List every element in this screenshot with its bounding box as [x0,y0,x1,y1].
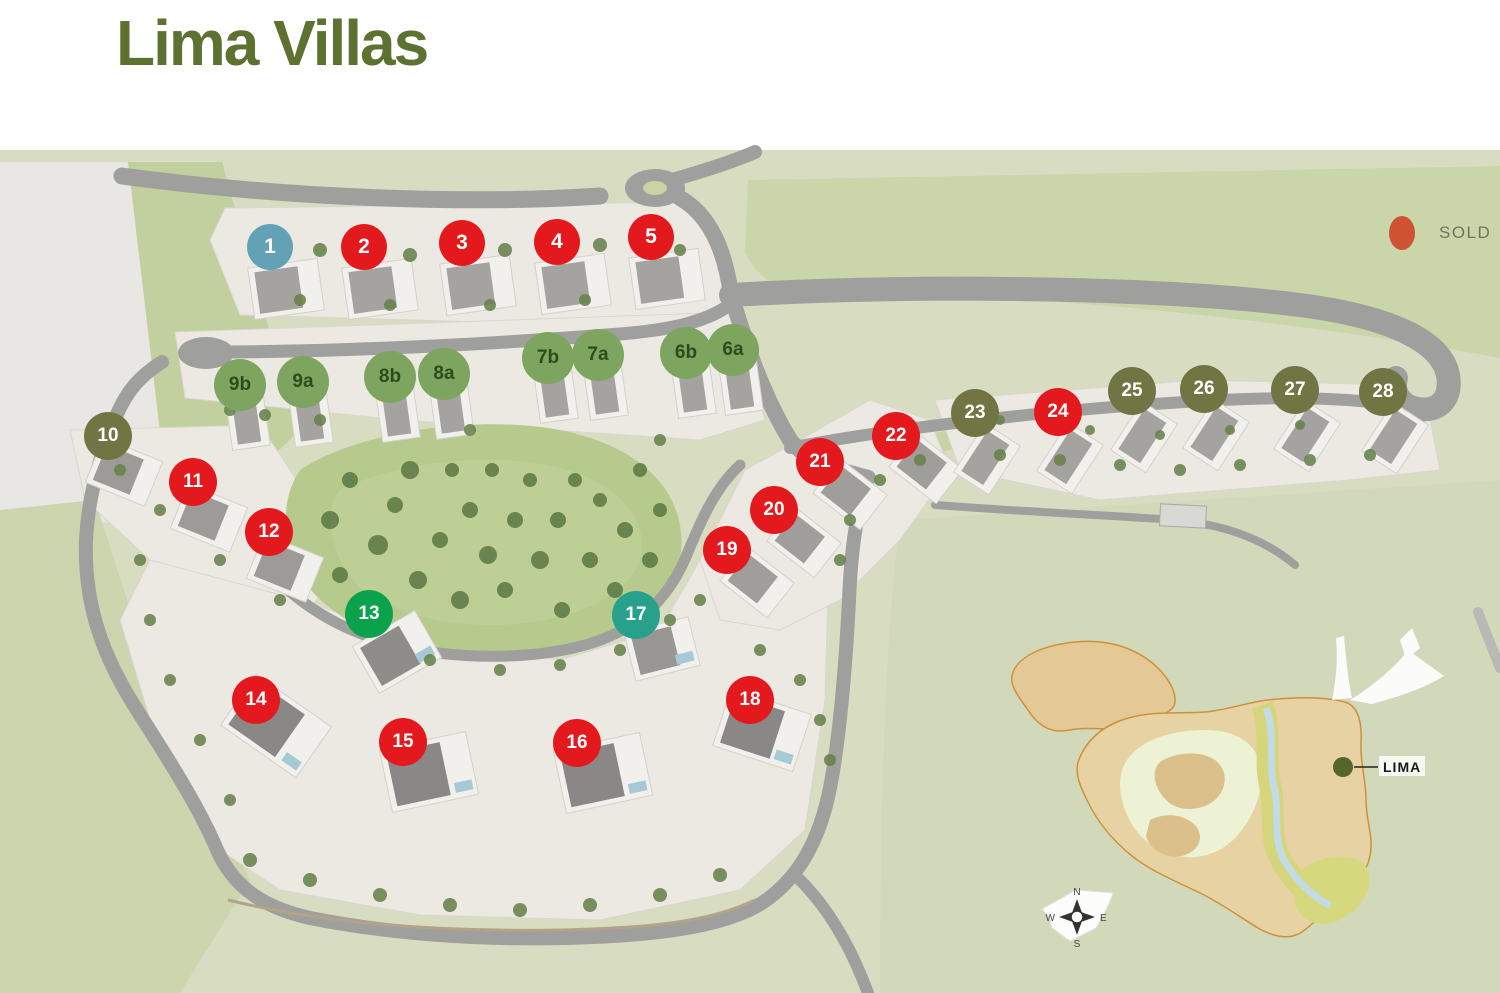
villa-marker-20[interactable]: 20 [750,486,798,534]
villa-marker-24[interactable]: 24 [1034,388,1082,436]
villa-marker-28[interactable]: 28 [1359,368,1407,416]
villa-marker-9b[interactable]: 9b [214,359,266,411]
page-title: Lima Villas [116,8,427,78]
villa-marker-26[interactable]: 26 [1180,365,1228,413]
villa-marker-14[interactable]: 14 [232,676,280,724]
villa-marker-27[interactable]: 27 [1271,366,1319,414]
villa-marker-17[interactable]: 17 [612,591,660,639]
sold-legend-label: SOLD [1439,223,1491,243]
villa-marker-10[interactable]: 10 [84,412,132,460]
villa-marker-21[interactable]: 21 [796,438,844,486]
villa-marker-22[interactable]: 22 [872,412,920,460]
villa-marker-13[interactable]: 13 [345,590,393,638]
villa-marker-6a[interactable]: 6a [707,324,759,376]
villa-marker-7a[interactable]: 7a [572,329,624,381]
villa-marker-15[interactable]: 15 [379,718,427,766]
sold-legend: SOLD [1389,216,1491,250]
villa-marker-8a[interactable]: 8a [418,348,470,400]
villa-marker-6b[interactable]: 6b [660,327,712,379]
villa-marker-9a[interactable]: 9a [277,356,329,408]
plot-marker-layer: 123456a6b7a7b8a8b9a9b1011121314151617181… [0,0,1500,993]
villa-marker-11[interactable]: 11 [169,458,217,506]
villa-marker-16[interactable]: 16 [553,719,601,767]
villa-marker-23[interactable]: 23 [951,389,999,437]
sold-dot-icon [1389,216,1415,250]
villa-marker-4[interactable]: 4 [534,219,580,265]
villa-marker-3[interactable]: 3 [439,220,485,266]
villa-marker-12[interactable]: 12 [245,508,293,556]
villa-marker-1[interactable]: 1 [247,224,293,270]
villa-marker-7b[interactable]: 7b [522,332,574,384]
villa-marker-8b[interactable]: 8b [364,351,416,403]
villa-marker-25[interactable]: 25 [1108,367,1156,415]
site-plan-map: LIMA N E S W 123456a6b7a7b8a8b9a9b101112… [0,0,1500,993]
villa-marker-18[interactable]: 18 [726,676,774,724]
villa-marker-19[interactable]: 19 [703,526,751,574]
villa-marker-2[interactable]: 2 [341,224,387,270]
villa-marker-5[interactable]: 5 [628,214,674,260]
